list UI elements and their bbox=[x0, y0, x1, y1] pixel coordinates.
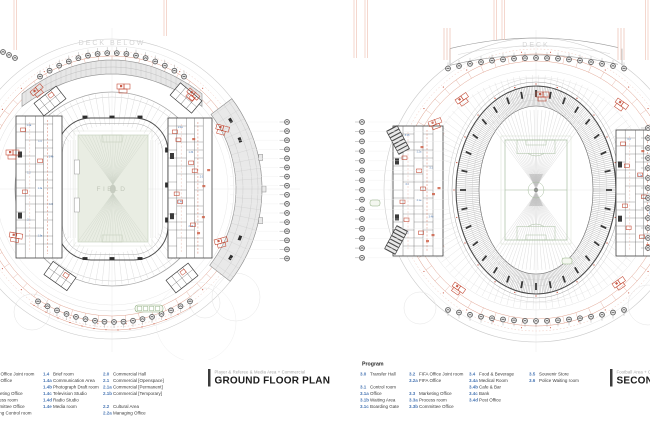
title-bar bbox=[610, 369, 613, 387]
legend-item-number: 3.6 bbox=[529, 378, 539, 385]
svg-text:3.3a: 3.3a bbox=[638, 175, 643, 178]
legend-item-number: 2.2a bbox=[103, 410, 113, 417]
svg-text:1.2a: 1.2a bbox=[38, 187, 43, 190]
svg-text:3.2a: 3.2a bbox=[417, 150, 422, 153]
legend-item-label: Media room bbox=[53, 404, 77, 409]
legend-item-number: 3.1c bbox=[360, 404, 370, 411]
legend-item-label: Bank bbox=[479, 391, 489, 396]
legend-item-label: Process room bbox=[419, 398, 447, 403]
ground-floor-plan: DECK BELOWFIELD1.4a1.41.4b1.21.2a1.32.11… bbox=[0, 0, 300, 360]
svg-text:1.4a: 1.4a bbox=[27, 124, 32, 127]
svg-text:1.3b: 1.3b bbox=[189, 151, 194, 154]
legend-item-label: Photograph Draft room bbox=[53, 385, 99, 390]
legend-item-label: FIFA Office Joint room bbox=[0, 372, 34, 377]
legend-item-label: Waiting Area bbox=[370, 398, 395, 403]
legend-item-number: 3.4d bbox=[469, 397, 479, 404]
svg-text:3.4b: 3.4b bbox=[429, 215, 434, 218]
legend-column-3: 3.4Food & Beverage3.4aMedical Room3.4bCa… bbox=[469, 371, 514, 404]
legend-column-4: 3.5Souvenir Store3.6Police Waiting room bbox=[529, 371, 579, 384]
legend-item-label: Marketing Office bbox=[0, 391, 23, 396]
legend-item-label: Office bbox=[370, 391, 382, 396]
green-label-capsule bbox=[135, 305, 163, 312]
legend-item-label: Post Office bbox=[479, 398, 501, 403]
legend-item-label: Communication Area bbox=[53, 378, 95, 383]
room-block: 3.43.3a3.1c bbox=[616, 130, 650, 256]
page-title-ground-floor-plan: GROUND FLOOR PLAN bbox=[215, 375, 331, 387]
legend-item-label: Marketing Office bbox=[419, 391, 452, 396]
title-block-ground-floor: Player & Referee & Media Area + Commerci… bbox=[208, 369, 438, 387]
legend-item-label: Souvenir Store bbox=[539, 372, 569, 377]
legend-item-label: Commercial [Permanent] bbox=[113, 385, 163, 390]
second-floor-plan: DECK3.1b3.2a3.13.33.1a3.4b3.23.43.3a3.1c bbox=[354, 0, 650, 352]
legend-item: 1.4eMedia room bbox=[43, 404, 99, 411]
svg-text:1.3a: 1.3a bbox=[38, 234, 43, 237]
legend-heading: Program bbox=[362, 361, 384, 367]
legend-item-label: Medical Room bbox=[479, 378, 508, 383]
legend-item-label: Committee Office bbox=[419, 404, 454, 409]
red-annotation-cluster bbox=[455, 93, 471, 108]
legend-column-3: 2.0Commercial Hall2.1Commercial [Openspa… bbox=[103, 371, 164, 417]
legend-item-label: Process room bbox=[0, 398, 18, 403]
legend-item-label: Boarding Gate bbox=[370, 404, 399, 409]
legend-item: 3.3bCommittee Office bbox=[409, 404, 463, 411]
legend-column-1: 1.2FIFA Office Joint room1.2aFIFA Office… bbox=[0, 371, 34, 417]
legend-item-label: Commercial [Temporary] bbox=[113, 391, 162, 396]
svg-text:1.4b: 1.4b bbox=[49, 156, 54, 159]
floor-plan-drawings: DECK BELOWFIELD1.4a1.41.4b1.21.2a1.32.11… bbox=[0, 0, 650, 360]
legend-item-label: FIFA Office bbox=[0, 378, 12, 383]
legend-item-label: Managing Office bbox=[113, 411, 146, 416]
legend-item: 3.1cBoarding Gate bbox=[360, 404, 399, 411]
legend-item-label: Cultural Area bbox=[113, 404, 139, 409]
legend-item-label: Food & Beverage bbox=[479, 372, 514, 377]
field: FIELD bbox=[68, 131, 158, 246]
red-annotation-cluster bbox=[613, 98, 629, 113]
legend-item-label: Committee Office bbox=[0, 404, 25, 409]
legend-item-label: Radio Studio bbox=[53, 398, 79, 403]
legend-item-label: Television Studio bbox=[53, 391, 87, 396]
legend-item: 3.6Police Waiting room bbox=[529, 378, 579, 385]
legend-item-label: Commercial [Openspace] bbox=[113, 378, 164, 383]
red-annotation-cluster bbox=[117, 84, 130, 93]
title-block-second-floor: Football Area + Commercial SECOND FLOOR … bbox=[610, 369, 650, 387]
legend-item-label: Cafe & Bar bbox=[479, 385, 501, 390]
svg-text:2.1a: 2.1a bbox=[178, 126, 183, 129]
room-block: 1.4a1.41.4b1.21.2a1.32.11.3a bbox=[16, 116, 62, 258]
title-category: Football Area + Commercial bbox=[617, 369, 650, 375]
legend-item-number: 3.3b bbox=[409, 404, 419, 411]
field-label: FIELD bbox=[97, 186, 128, 193]
deck-label: DECK bbox=[522, 42, 549, 49]
room-cluster bbox=[166, 263, 198, 293]
legend-item-label: Brief room bbox=[53, 372, 74, 377]
title-category: Player & Referee & Media Area + Commerci… bbox=[215, 369, 331, 375]
legend-item-label: Doping Control room bbox=[0, 411, 32, 416]
legend-item-label: Commercial Hall bbox=[113, 372, 146, 377]
deck-below-label: DECK BELOW bbox=[79, 40, 146, 47]
drawing-sheet: DECK BELOWFIELD1.4a1.41.4b1.21.2a1.32.11… bbox=[0, 0, 650, 433]
legend-item: 1.3cDoping Control room bbox=[0, 410, 34, 417]
room-block: 2.1a1.3b2.01.4c2.1b bbox=[168, 118, 212, 258]
east-deck-arc bbox=[210, 99, 266, 282]
legend-item-label: Police Waiting room bbox=[539, 378, 579, 383]
svg-text:3.1b: 3.1b bbox=[405, 134, 410, 137]
legend-item: 2.2aManaging Office bbox=[103, 410, 164, 417]
legend-column-2: 1.4Brief room1.4aCommunication Area1.4bP… bbox=[43, 371, 99, 410]
red-annotation-cluster bbox=[450, 282, 466, 297]
legend-item-number: 1.4e bbox=[43, 404, 53, 411]
legend-item: 3.4dPost Office bbox=[469, 397, 514, 404]
page-title-second-floor-plan: SECOND FLOOR PLAN bbox=[617, 375, 650, 387]
title-bar bbox=[208, 369, 211, 387]
